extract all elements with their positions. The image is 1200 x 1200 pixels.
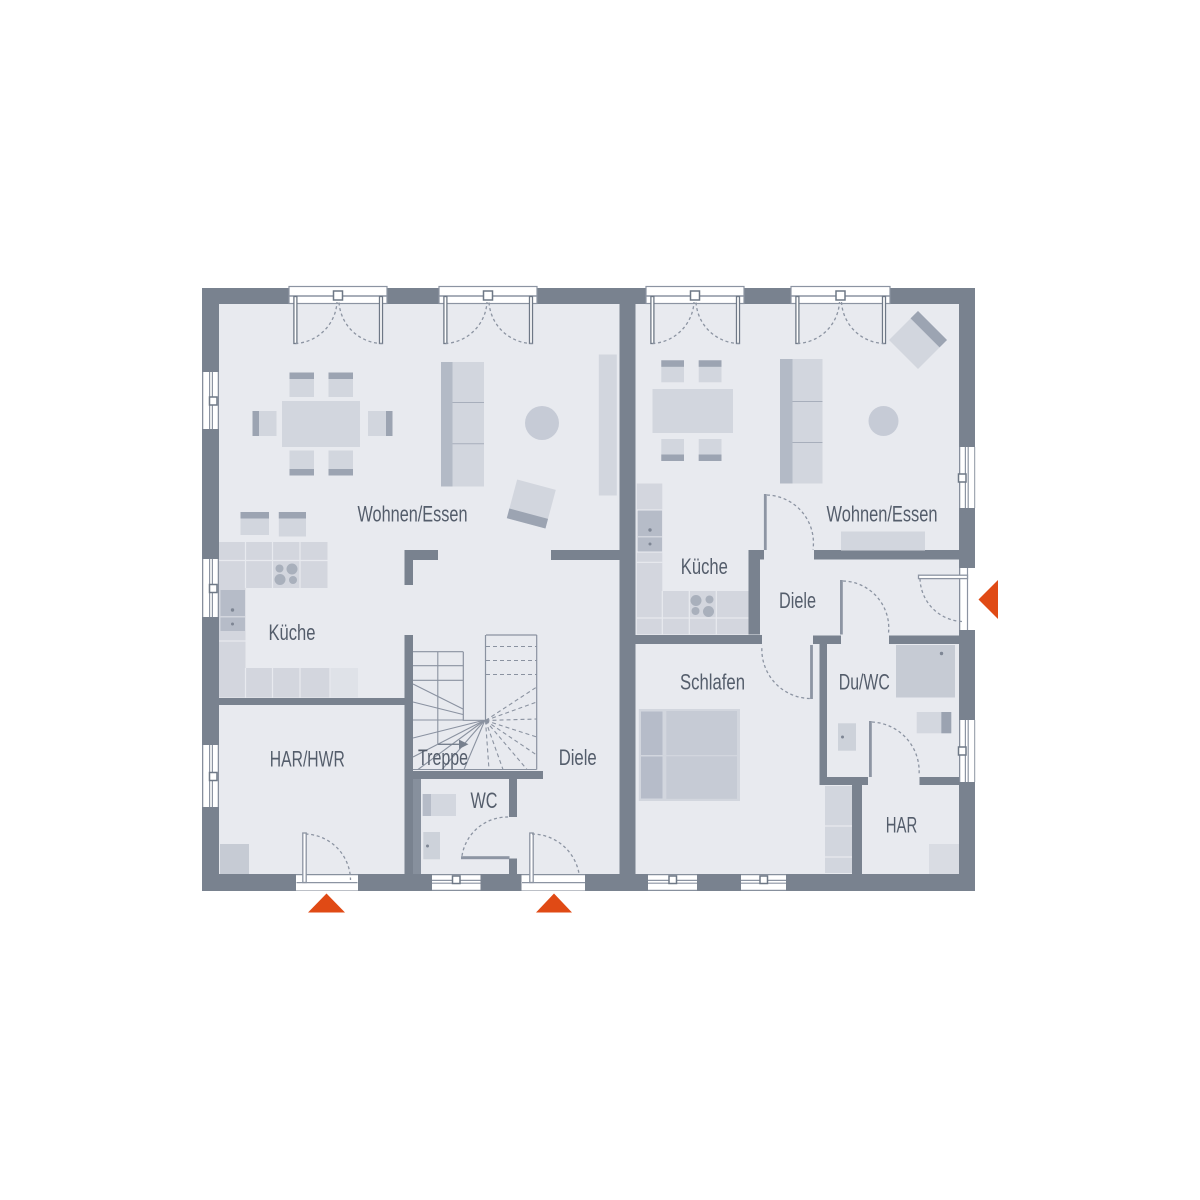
svg-text:Wohnen/Essen: Wohnen/Essen [827,502,938,527]
svg-text:Küche: Küche [681,554,728,579]
svg-text:Du/WC: Du/WC [839,670,890,695]
svg-text:Treppe: Treppe [418,745,468,770]
svg-text:HAR: HAR [886,813,918,838]
svg-text:WC: WC [471,788,498,813]
svg-text:Wohnen/Essen: Wohnen/Essen [358,502,468,527]
svg-text:Diele: Diele [779,588,816,613]
svg-text:Küche: Küche [269,620,316,645]
svg-text:Diele: Diele [559,745,597,770]
svg-text:Schlafen: Schlafen [680,670,745,695]
svg-text:HAR/HWR: HAR/HWR [270,747,345,772]
